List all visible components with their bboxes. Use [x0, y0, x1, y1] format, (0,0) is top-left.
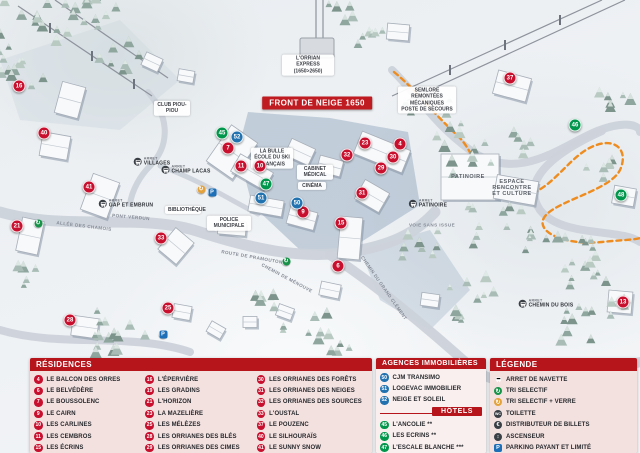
parking-icon: P	[159, 330, 167, 338]
list-item: 33L'OUSTAL	[257, 408, 368, 419]
list-item: 52NEIGE ET SOLEIL	[380, 395, 482, 406]
map-label: SEMLORE REMONTÉES MÉCANIQUES POSTE DE SE…	[398, 87, 456, 114]
recycle-icon: ↻	[282, 257, 290, 265]
item-label: L'ÉPERVIÈRE	[158, 377, 198, 383]
legende-label: TOILETTE	[506, 411, 536, 417]
item-number-badge: 10	[34, 421, 43, 430]
item-number-badge: 31	[257, 387, 266, 396]
recycle-glass-icon: ↻	[197, 185, 205, 193]
wc-icon: WC	[494, 410, 502, 418]
item-number-badge: 9	[34, 410, 43, 419]
euro-icon: €	[494, 421, 502, 429]
list-item: 50CJM TRANSIMO	[380, 372, 482, 383]
item-label: LES ECRINS **	[393, 433, 437, 439]
item-label: LES CEMBROS	[47, 434, 92, 440]
item-label: LES ÉCRINS	[47, 445, 84, 451]
list-item: 41LE SUNNY SNOW	[257, 442, 368, 453]
item-label: L'OUSTAL	[269, 411, 299, 417]
map-recycle-icon: ↻	[34, 219, 43, 228]
bus-stop: ARRETVILLAGES	[134, 158, 171, 167]
list-item: 51LOGEVAC IMMOBILIER	[380, 383, 482, 394]
map-label: VOIE SANS ISSUE	[409, 223, 455, 228]
legende-label: PARKING PAYANT ET LIMITÉ	[506, 445, 591, 451]
map-label: ESPACE RENCONTRE ET CULTURE	[490, 179, 534, 197]
item-label: LE CAIRN	[47, 411, 76, 417]
list-item: 46LES ECRINS **	[380, 431, 482, 442]
map-marker-50: 50	[291, 197, 304, 210]
list-item: 30LES ORRIANES DES FORÊTS	[257, 374, 368, 385]
legende-item: ↕ASCENSEUR	[494, 431, 633, 442]
item-label: LES ORRIANES DES NEIGES	[269, 388, 355, 394]
item-label: LES ORRIANES DES FORÊTS	[269, 377, 356, 383]
bus-icon	[161, 166, 169, 174]
item-label: LES ORRIANES DES CIMES	[158, 445, 240, 451]
resort-map-page: L'ORRIAN EXPRESS (1650>2650)SEMLORE REMO…	[0, 0, 640, 453]
map-marker-40: 40	[38, 127, 51, 140]
legende-item: ↻TRI SELECTIF	[494, 385, 633, 396]
hotels-header: HÔTELS	[380, 407, 482, 418]
list-item: 7LE BOUSSOLENC	[34, 397, 145, 408]
item-number-badge: 41	[257, 444, 266, 453]
item-number-badge: 23	[145, 410, 154, 419]
list-item: 32LES ORRIANES DES SOURCES	[257, 397, 368, 408]
map-marker-23: 23	[359, 137, 372, 150]
legende-panel: LÉGENDE ARRET DE NAVETTE↻TRI SELECTIF↻TR…	[490, 358, 637, 453]
map-label: CLUB PIOU-PIOU	[154, 101, 190, 116]
map-label: CABINET MÉDICAL	[297, 165, 333, 180]
item-number-badge: 37	[257, 421, 266, 430]
map-marker-15: 15	[335, 217, 348, 230]
item-label: LE SUNNY SNOW	[269, 445, 321, 451]
map-marker-48: 48	[615, 189, 628, 202]
recycle-glass-icon: ↻	[494, 398, 502, 406]
item-label: LES CARLINES	[47, 422, 92, 428]
residences-list: 4LE BALCON DES ORRES6LE BELVÉDÈRE7LE BOU…	[30, 371, 372, 453]
map-parking-icon: P	[159, 330, 168, 339]
list-item: 15LES ÉCRINS	[34, 442, 145, 453]
legende-label: ARRET DE NAVETTE	[506, 377, 568, 383]
residences-title: RÉSIDENCES	[30, 358, 372, 371]
bus-stop: ARRETCHAMP LACAS	[161, 166, 210, 175]
legende-label: DISTRIBUTEUR DE BILLETS	[506, 422, 590, 428]
item-number-badge: 45	[380, 421, 389, 430]
map-marker-6: 6	[332, 260, 345, 273]
residences-column: 30LES ORRIANES DES FORÊTS31LES ORRIANES …	[257, 374, 368, 453]
list-item: 40LE SILHOURAÏS	[257, 431, 368, 442]
parking-icon: P	[494, 444, 502, 452]
list-item: 29LES ORRIANES DES CIMES	[145, 442, 256, 453]
item-number-badge: 52	[380, 396, 389, 405]
item-number-badge: 46	[380, 432, 389, 441]
item-number-badge: 11	[34, 432, 43, 441]
map-marker-29: 29	[375, 162, 388, 175]
item-number-badge: 7	[34, 398, 43, 407]
list-item: 25LES MÉLÈZES	[145, 420, 256, 431]
list-item: 10LES CARLINES	[34, 420, 145, 431]
map-marker-11: 11	[235, 160, 248, 173]
item-number-badge: 47	[380, 443, 389, 452]
map-label: POLICE MUNICIPALE	[207, 216, 251, 231]
item-number-badge: 15	[34, 444, 43, 453]
item-number-badge: 40	[257, 432, 266, 441]
list-item: 16L'ÉPERVIÈRE	[145, 374, 256, 385]
item-label: LES ORRIANES DES BLÉS	[158, 434, 237, 440]
item-number-badge: 16	[145, 375, 154, 384]
list-item: 4LE BALCON DES ORRES	[34, 374, 145, 385]
item-label: LE SILHOURAÏS	[269, 434, 317, 440]
item-label: LES GRADINS	[158, 388, 200, 394]
map-marker-7: 7	[222, 142, 235, 155]
legende-item: PPARKING PAYANT ET LIMITÉ	[494, 442, 633, 453]
item-number-badge: 32	[257, 398, 266, 407]
list-item: 47L'ESCALE BLANCHE ***	[380, 442, 482, 453]
item-number-badge: 6	[34, 387, 43, 396]
front-de-neige-banner: FRONT DE NEIGE 1650	[262, 97, 372, 110]
recycle-icon: ↻	[494, 387, 502, 395]
map-marker-21: 21	[11, 220, 24, 233]
map-recycle-verre-icon: ↻	[197, 185, 206, 194]
map-marker-46: 46	[569, 119, 582, 132]
list-item: 21L'HORIZON	[145, 397, 256, 408]
item-number-badge: 4	[34, 375, 43, 384]
item-label: LE BELVÉDÈRE	[47, 388, 94, 394]
list-item: 6LE BELVÉDÈRE	[34, 385, 145, 396]
bus-icon	[519, 300, 527, 308]
legende-title: LÉGENDE	[490, 358, 637, 371]
item-number-badge: 19	[145, 387, 154, 396]
agences-panel: AGENCES IMMOBILIÈRES 50CJM TRANSIMO51LOG…	[376, 358, 486, 453]
map-marker-52: 52	[231, 131, 244, 144]
map-label: BIBLIOTHÈQUE	[165, 206, 201, 214]
item-label: NEIGE ET SOLEIL	[393, 397, 446, 403]
item-number-badge: 33	[257, 410, 266, 419]
item-label: L'ESCALE BLANCHE ***	[393, 445, 464, 451]
agences-body: 50CJM TRANSIMO51LOGEVAC IMMOBILIER52NEIG…	[376, 369, 486, 453]
map-recycle-icon: ↻	[282, 257, 291, 266]
legende-item: ↻TRI SELECTIF + VERRE	[494, 397, 633, 408]
map-marker-47: 47	[260, 178, 273, 191]
legende-item: €DISTRIBUTEUR DE BILLETS	[494, 420, 633, 431]
bus-stop: ARRETPATINOIRE	[409, 200, 447, 209]
map-label: CINÉMA	[298, 182, 326, 190]
list-item: 31LES ORRIANES DES NEIGES	[257, 385, 368, 396]
hotels-title: HÔTELS	[432, 407, 482, 416]
residences-column: 16L'ÉPERVIÈRE19LES GRADINS21L'HORIZON23L…	[145, 374, 256, 453]
map-marker-45: 45	[216, 127, 229, 140]
item-label: CJM TRANSIMO	[393, 375, 441, 381]
map-marker-37: 37	[504, 72, 517, 85]
item-label: LE BOUSSOLENC	[47, 399, 100, 405]
legende-list: ARRET DE NAVETTE↻TRI SELECTIF↻TRI SELECT…	[490, 371, 637, 453]
item-label: L'HORIZON	[158, 399, 192, 405]
list-item: 37LE POUZENC	[257, 420, 368, 431]
item-number-badge: 29	[145, 444, 154, 453]
item-label: LE POUZENC	[269, 422, 309, 428]
agences-title: AGENCES IMMOBILIÈRES	[376, 358, 486, 369]
item-number-badge: 30	[257, 375, 266, 384]
map-marker-28: 28	[64, 314, 77, 327]
map-marker-51: 51	[255, 192, 268, 205]
item-number-badge: 25	[145, 421, 154, 430]
legende-label: TRI SELECTIF	[506, 388, 548, 394]
map-marker-33: 33	[155, 232, 168, 245]
bus-icon	[409, 200, 417, 208]
item-label: LES MÉLÈZES	[158, 422, 201, 428]
elevator-icon: ↕	[494, 433, 502, 441]
map-marker-32: 32	[341, 149, 354, 162]
item-label: LA MAZELIÈRE	[158, 411, 203, 417]
parking-icon: P	[208, 188, 216, 196]
residences-panel: RÉSIDENCES 4LE BALCON DES ORRES6LE BELVÉ…	[30, 358, 372, 453]
bus-icon	[99, 200, 107, 208]
list-item: 9LE CAIRN	[34, 408, 145, 419]
item-label: L'ANCOLIE **	[393, 422, 433, 428]
bus-stop: ARRETGAP ET EMBRUN	[99, 200, 153, 209]
residences-column: 4LE BALCON DES ORRES6LE BELVÉDÈRE7LE BOU…	[34, 374, 145, 453]
list-item: 45L'ANCOLIE **	[380, 419, 482, 430]
legende-item: ARRET DE NAVETTE	[494, 374, 633, 385]
map-label: L'ORRIAN EXPRESS (1650>2650)	[282, 55, 334, 76]
map-label: PATINOIRE	[448, 174, 488, 180]
snow-shadow-3	[0, 20, 180, 130]
map-parking-icon: P	[208, 188, 217, 197]
item-number-badge: 21	[145, 398, 154, 407]
item-number-badge: 28	[145, 432, 154, 441]
map-marker-31: 31	[356, 187, 369, 200]
bus-icon	[494, 376, 502, 384]
map-marker-13: 13	[617, 296, 630, 309]
list-item: 28LES ORRIANES DES BLÉS	[145, 431, 256, 442]
map-marker-41: 41	[83, 181, 96, 194]
list-item: 11LES CEMBROS	[34, 431, 145, 442]
map-marker-30: 30	[387, 151, 400, 164]
bus-stop: ARRETCHEMIN DU BOIS	[519, 300, 574, 309]
item-number-badge: 51	[380, 385, 389, 394]
map-marker-25: 25	[162, 302, 175, 315]
map-marker-16: 16	[13, 80, 26, 93]
legende-label: ASCENSEUR	[506, 434, 545, 440]
legende-item: WCTOILETTE	[494, 408, 633, 419]
list-item: 19LES GRADINS	[145, 385, 256, 396]
list-item: 23LA MAZELIÈRE	[145, 408, 256, 419]
map-marker-4: 4	[394, 138, 407, 151]
recycle-icon: ↻	[34, 219, 42, 227]
item-label: LE BALCON DES ORRES	[47, 377, 121, 383]
legende-label: TRI SELECTIF + VERRE	[506, 399, 576, 405]
item-label: LOGEVAC IMMOBILIER	[393, 386, 462, 392]
item-number-badge: 50	[380, 373, 389, 382]
map-marker-10: 10	[254, 160, 267, 173]
bus-icon	[134, 158, 142, 166]
item-label: LES ORRIANES DES SOURCES	[269, 399, 362, 405]
